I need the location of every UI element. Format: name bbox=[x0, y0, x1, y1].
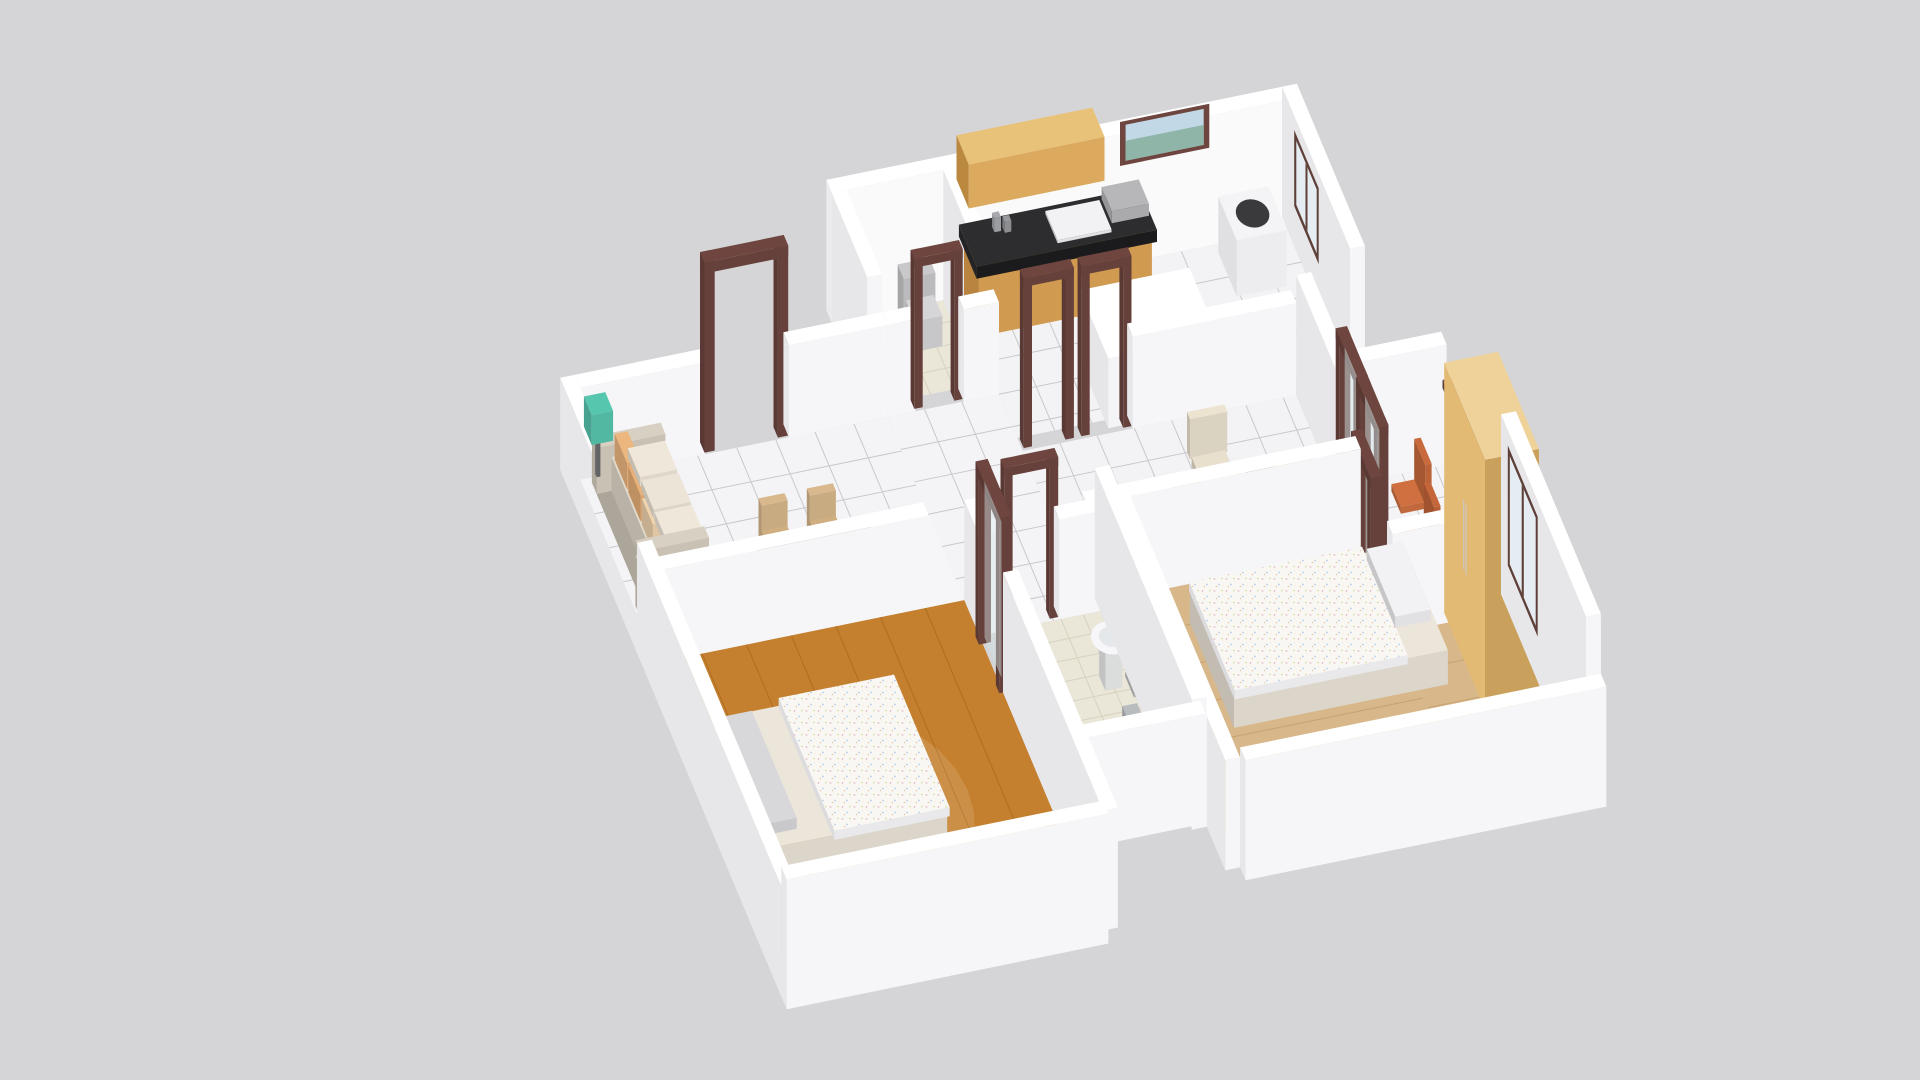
living-north-wall-b-west bbox=[783, 332, 788, 437]
kitchen-door-frame-2-post-east-west bbox=[1119, 249, 1123, 428]
kitchen-door-frame-1-post-east-south bbox=[1066, 268, 1074, 440]
desk-chair-back-west bbox=[1187, 412, 1190, 459]
wardrobe-handle-2 bbox=[1466, 504, 1467, 576]
bottle-2-south bbox=[1005, 221, 1012, 233]
corridor-north-wall-west bbox=[1127, 324, 1133, 429]
north-wall-west bbox=[826, 180, 831, 323]
entrance-door-frame-post-west-south bbox=[705, 261, 715, 453]
bedroom2-window-mullion bbox=[1522, 485, 1524, 598]
kitchen-door-frame-2-post-west-west bbox=[1078, 257, 1082, 436]
wc-door-frame-post-west-south bbox=[914, 257, 922, 409]
floor-lamp-shade-south bbox=[592, 411, 613, 445]
kitchen-door-frame-1-post-west-south bbox=[1024, 276, 1032, 448]
kitchen-door-frame-1-post-east-west bbox=[1062, 261, 1066, 440]
bath-north-wall-b-west bbox=[1054, 506, 1059, 619]
kitchen-door-frame-1-post-west-west bbox=[1020, 269, 1024, 448]
bottle-1-south bbox=[994, 217, 1001, 232]
kitchen-door-frame-2-post-west-south bbox=[1081, 265, 1089, 437]
wc-south-wall-b-west bbox=[958, 297, 964, 402]
floorplan-stage bbox=[0, 0, 1920, 1080]
washing-machine-south bbox=[1237, 230, 1287, 296]
entrance-door-frame-post-west-west bbox=[700, 252, 705, 453]
utility-window-mullion bbox=[1306, 163, 1308, 232]
master-door-frame-post-north-west bbox=[976, 462, 979, 645]
wc-door-frame-post-west-west bbox=[911, 250, 915, 409]
entrance-door-frame-post-east-west bbox=[774, 237, 778, 438]
bedroom2-south-wall-west bbox=[1240, 747, 1246, 880]
wc-south-wall-b-south bbox=[964, 302, 999, 401]
floorplan-render bbox=[0, 0, 1920, 1080]
master-south-wall-west bbox=[781, 866, 786, 1009]
wardrobe-handle-1 bbox=[1463, 498, 1464, 570]
wc-door-frame-post-east-west bbox=[951, 242, 955, 401]
bedroom2-west-wall-south bbox=[1225, 757, 1240, 870]
bathroom-door-frame-post-east-west bbox=[1046, 450, 1050, 619]
